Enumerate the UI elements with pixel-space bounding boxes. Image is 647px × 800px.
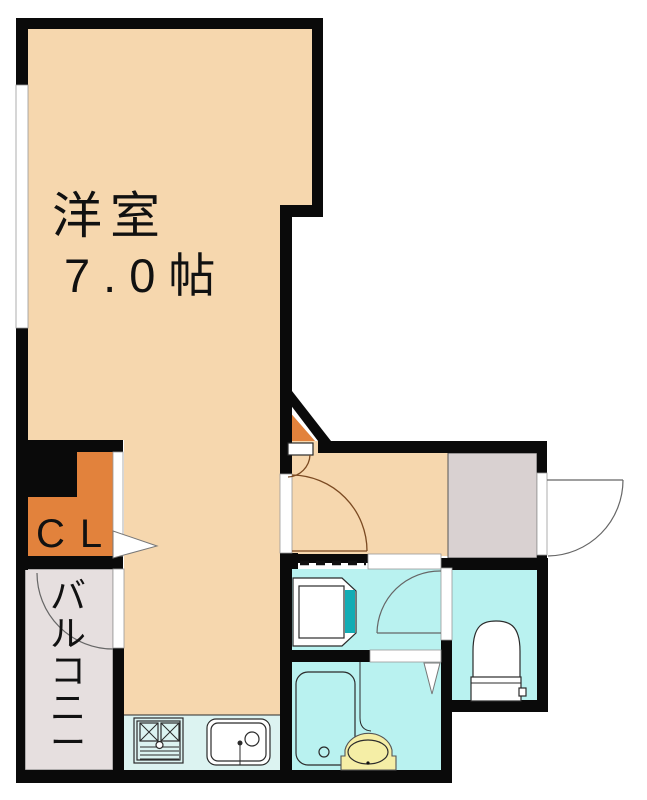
kitchen-faucet-head: [238, 741, 243, 746]
shoe-cabinet: [288, 443, 313, 455]
balcony-label-char-3: コ: [50, 650, 86, 691]
wall-sanitary-left: [280, 569, 292, 782]
main-room-name-label: 洋室: [52, 188, 168, 244]
balcony-door-opening: [113, 569, 124, 648]
balcony-label-char-5: ー: [50, 722, 86, 763]
hall-doorway: [280, 474, 292, 553]
front-doorway: [537, 473, 547, 555]
wall-hall-top: [318, 441, 547, 453]
balcony-label-char-1: バ: [50, 575, 86, 616]
wall-right-upper: [312, 18, 323, 217]
wall-bath-divider: [292, 650, 370, 662]
balcony-label: バ ル コ ニ ー: [50, 575, 86, 763]
main-room-size-label: 7.0帖: [64, 249, 228, 302]
wall-toilet-right: [537, 558, 548, 712]
wall-left-balcony: [16, 570, 25, 783]
stove-knob: [156, 742, 163, 749]
floor-plan-svg: 洋室 7.0帖 CL バ ル コ ニ ー: [0, 0, 647, 800]
pipe-space-block: [28, 452, 77, 497]
toilet-doorway: [441, 568, 452, 640]
wash-basin-tap: [366, 761, 369, 764]
front-door-arc: [548, 480, 623, 556]
wall-closet-top: [16, 440, 123, 452]
wall-toilet-bottom: [441, 700, 548, 712]
floor-plan-page: 洋室 7.0帖 CL バ ル コ ニ ー: [0, 0, 647, 800]
wall-left-upper: [16, 18, 28, 85]
main-room-window: [16, 85, 28, 328]
toilet-flush-handle: [519, 688, 526, 696]
wall-right-mid: [280, 205, 292, 474]
balcony-label-char-2: ル: [50, 613, 86, 654]
washer-space-inner: [299, 586, 344, 638]
entrance-genkan-floor: [448, 453, 537, 558]
closet-label: CL: [36, 512, 117, 556]
bathroom-doorway: [370, 650, 441, 662]
washroom-doorway: [368, 554, 441, 569]
wall-hall-bottom-left: [280, 553, 298, 569]
toilet-bowl: [473, 621, 520, 678]
washer-counter-accent: [345, 590, 355, 633]
wall-toilet-top: [441, 558, 547, 570]
wall-entrance-right-upper: [537, 441, 547, 474]
wall-bottom: [16, 770, 452, 783]
hall-floor: [288, 441, 448, 556]
wall-kitchen-balcony: [113, 648, 124, 770]
wall-closet-bottom: [16, 556, 123, 569]
wall-top: [16, 18, 323, 29]
toilet-tank: [471, 677, 521, 701]
